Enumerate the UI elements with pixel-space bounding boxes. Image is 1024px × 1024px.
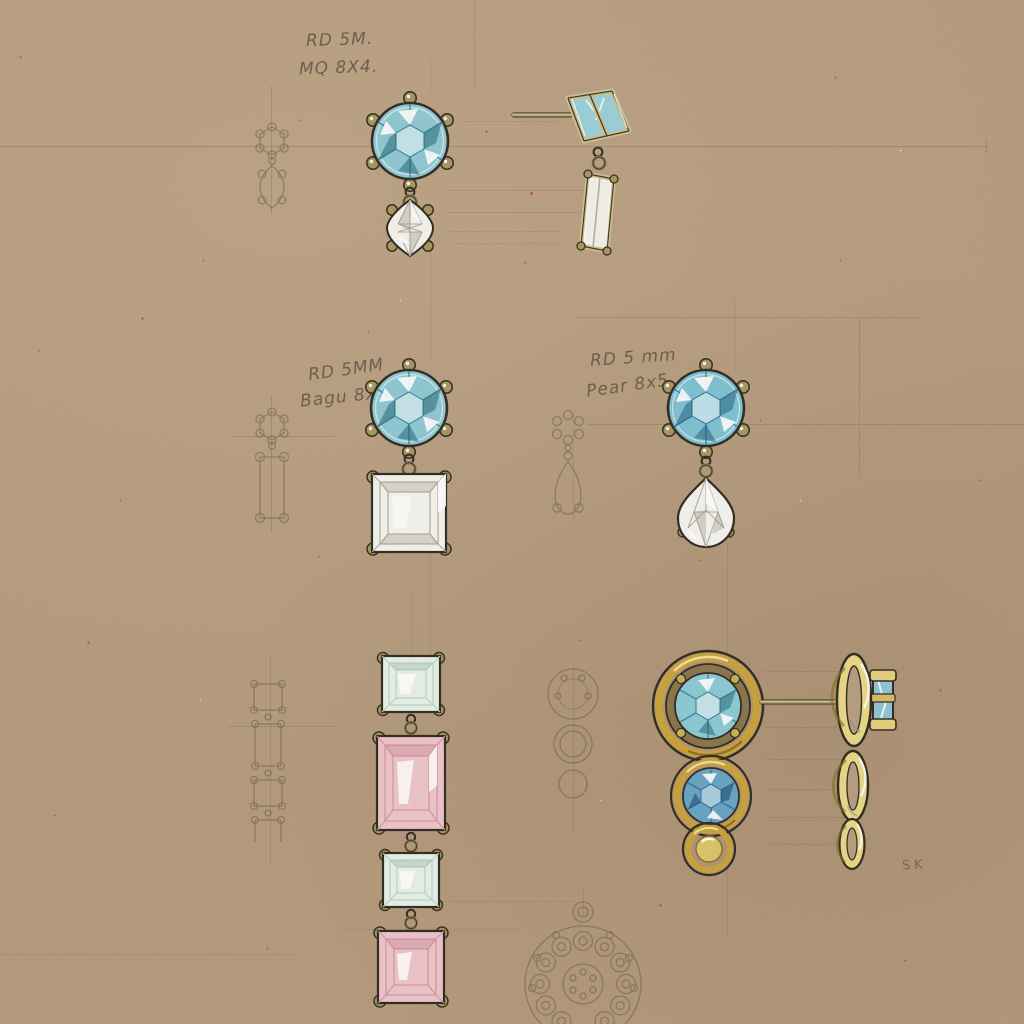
round-aquamarine-stud bbox=[366, 359, 452, 458]
construction-line bbox=[474, 0, 475, 92]
front-view-round-baguette-earring bbox=[354, 356, 464, 556]
sketchbook-page: RD 5M. MQ 8X4. RD 5MM Bagu 8x4 RD 5 mm P… bbox=[0, 0, 1024, 1024]
construction-line bbox=[452, 243, 562, 244]
paper-speckles bbox=[0, 0, 1, 1]
pencil-thumbnail-round-marquise bbox=[244, 116, 300, 218]
round-aquamarine-stud bbox=[367, 92, 453, 191]
carre-step-cut-stone-1 bbox=[378, 653, 445, 716]
front-view-round-marquise-earring bbox=[356, 84, 462, 258]
construction-line bbox=[576, 317, 922, 318]
construction-line bbox=[986, 139, 987, 155]
construction-line bbox=[0, 954, 300, 955]
side-view-stud-basket bbox=[568, 91, 629, 141]
connector-loop bbox=[593, 148, 605, 169]
construction-line bbox=[462, 121, 558, 122]
carre-step-cut-stone-2 bbox=[380, 850, 443, 911]
marquise-diamond-drop bbox=[387, 200, 433, 256]
side-view-round-marquise-earring bbox=[552, 86, 640, 256]
construction-line bbox=[0, 146, 988, 147]
pencil-thumbnail-round-pear bbox=[536, 406, 600, 526]
annotation-design1-line2: MQ 8X4. bbox=[299, 57, 379, 80]
small-ring-profile bbox=[837, 819, 864, 869]
pencil-sketch-cluster-pendant bbox=[512, 898, 652, 1024]
connector-loop bbox=[405, 715, 416, 734]
side-view-marquise-profile bbox=[577, 170, 618, 255]
construction-line bbox=[450, 231, 562, 232]
designer-signature: SK bbox=[902, 857, 928, 873]
large-ring-profile bbox=[832, 654, 871, 746]
pencil-thumbnail-line-drop bbox=[246, 680, 290, 842]
large-gold-halo-aquamarine bbox=[653, 651, 763, 761]
connector-loop bbox=[405, 833, 416, 852]
medium-ring-profile bbox=[833, 751, 868, 821]
front-view-bezel-circles-earring bbox=[648, 646, 770, 878]
pink-baguette-stone-1 bbox=[373, 732, 449, 834]
round-aquamarine-stud bbox=[663, 359, 749, 458]
baguette-diamond-drop bbox=[367, 471, 451, 555]
construction-line bbox=[430, 548, 431, 660]
side-view-bezel-circles-earring bbox=[820, 646, 902, 878]
pencil-thumbnail-round-baguette bbox=[246, 404, 302, 530]
pencil-thumbnail-bezel-circles bbox=[538, 666, 604, 808]
pear-diamond-drop bbox=[678, 478, 734, 547]
pink-baguette-stone-2 bbox=[374, 927, 448, 1007]
construction-line bbox=[430, 250, 431, 362]
construction-line bbox=[727, 544, 728, 654]
front-view-round-pear-earring bbox=[650, 354, 762, 554]
front-view-line-drop-earring bbox=[364, 646, 458, 1012]
annotation-design1-line1: RD 5M. bbox=[306, 29, 374, 51]
small-gold-bead bbox=[683, 823, 735, 875]
construction-line bbox=[859, 318, 860, 476]
connector-loop bbox=[700, 457, 712, 477]
stud-stone-profile bbox=[870, 670, 896, 730]
connector-loop bbox=[405, 910, 416, 929]
